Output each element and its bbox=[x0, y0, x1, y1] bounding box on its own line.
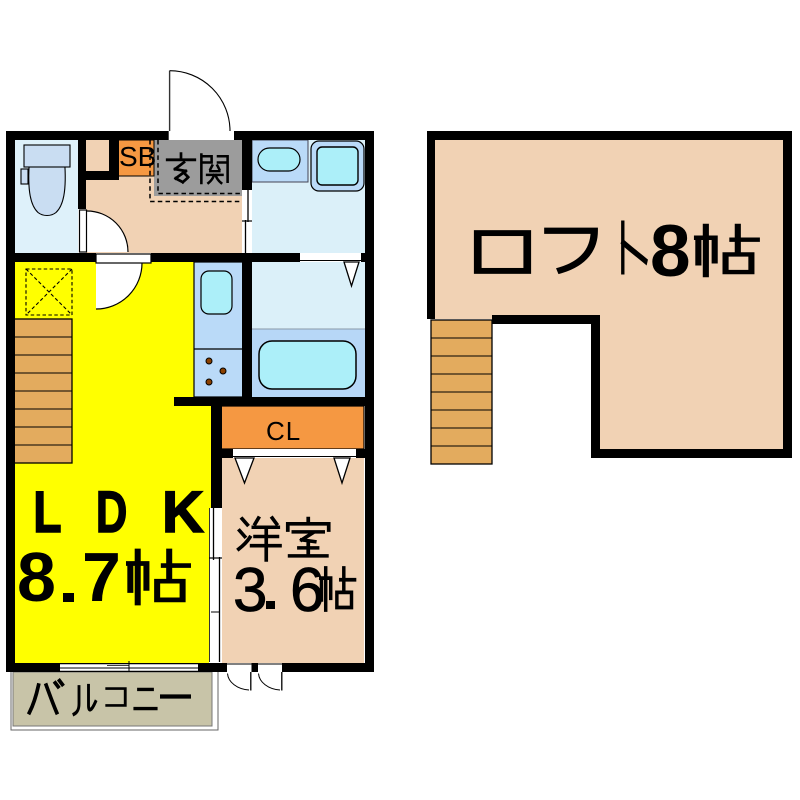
svg-text:D: D bbox=[96, 480, 127, 544]
svg-text:K: K bbox=[162, 480, 204, 545]
svg-text:L: L bbox=[33, 480, 61, 545]
svg-text:6: 6 bbox=[290, 556, 324, 625]
svg-text:CL: CL bbox=[266, 416, 301, 446]
svg-text:8: 8 bbox=[650, 211, 691, 292]
svg-text:3: 3 bbox=[233, 556, 267, 625]
svg-text:SB: SB bbox=[119, 141, 156, 172]
svg-text:8: 8 bbox=[17, 538, 56, 616]
svg-text:7: 7 bbox=[82, 538, 121, 616]
